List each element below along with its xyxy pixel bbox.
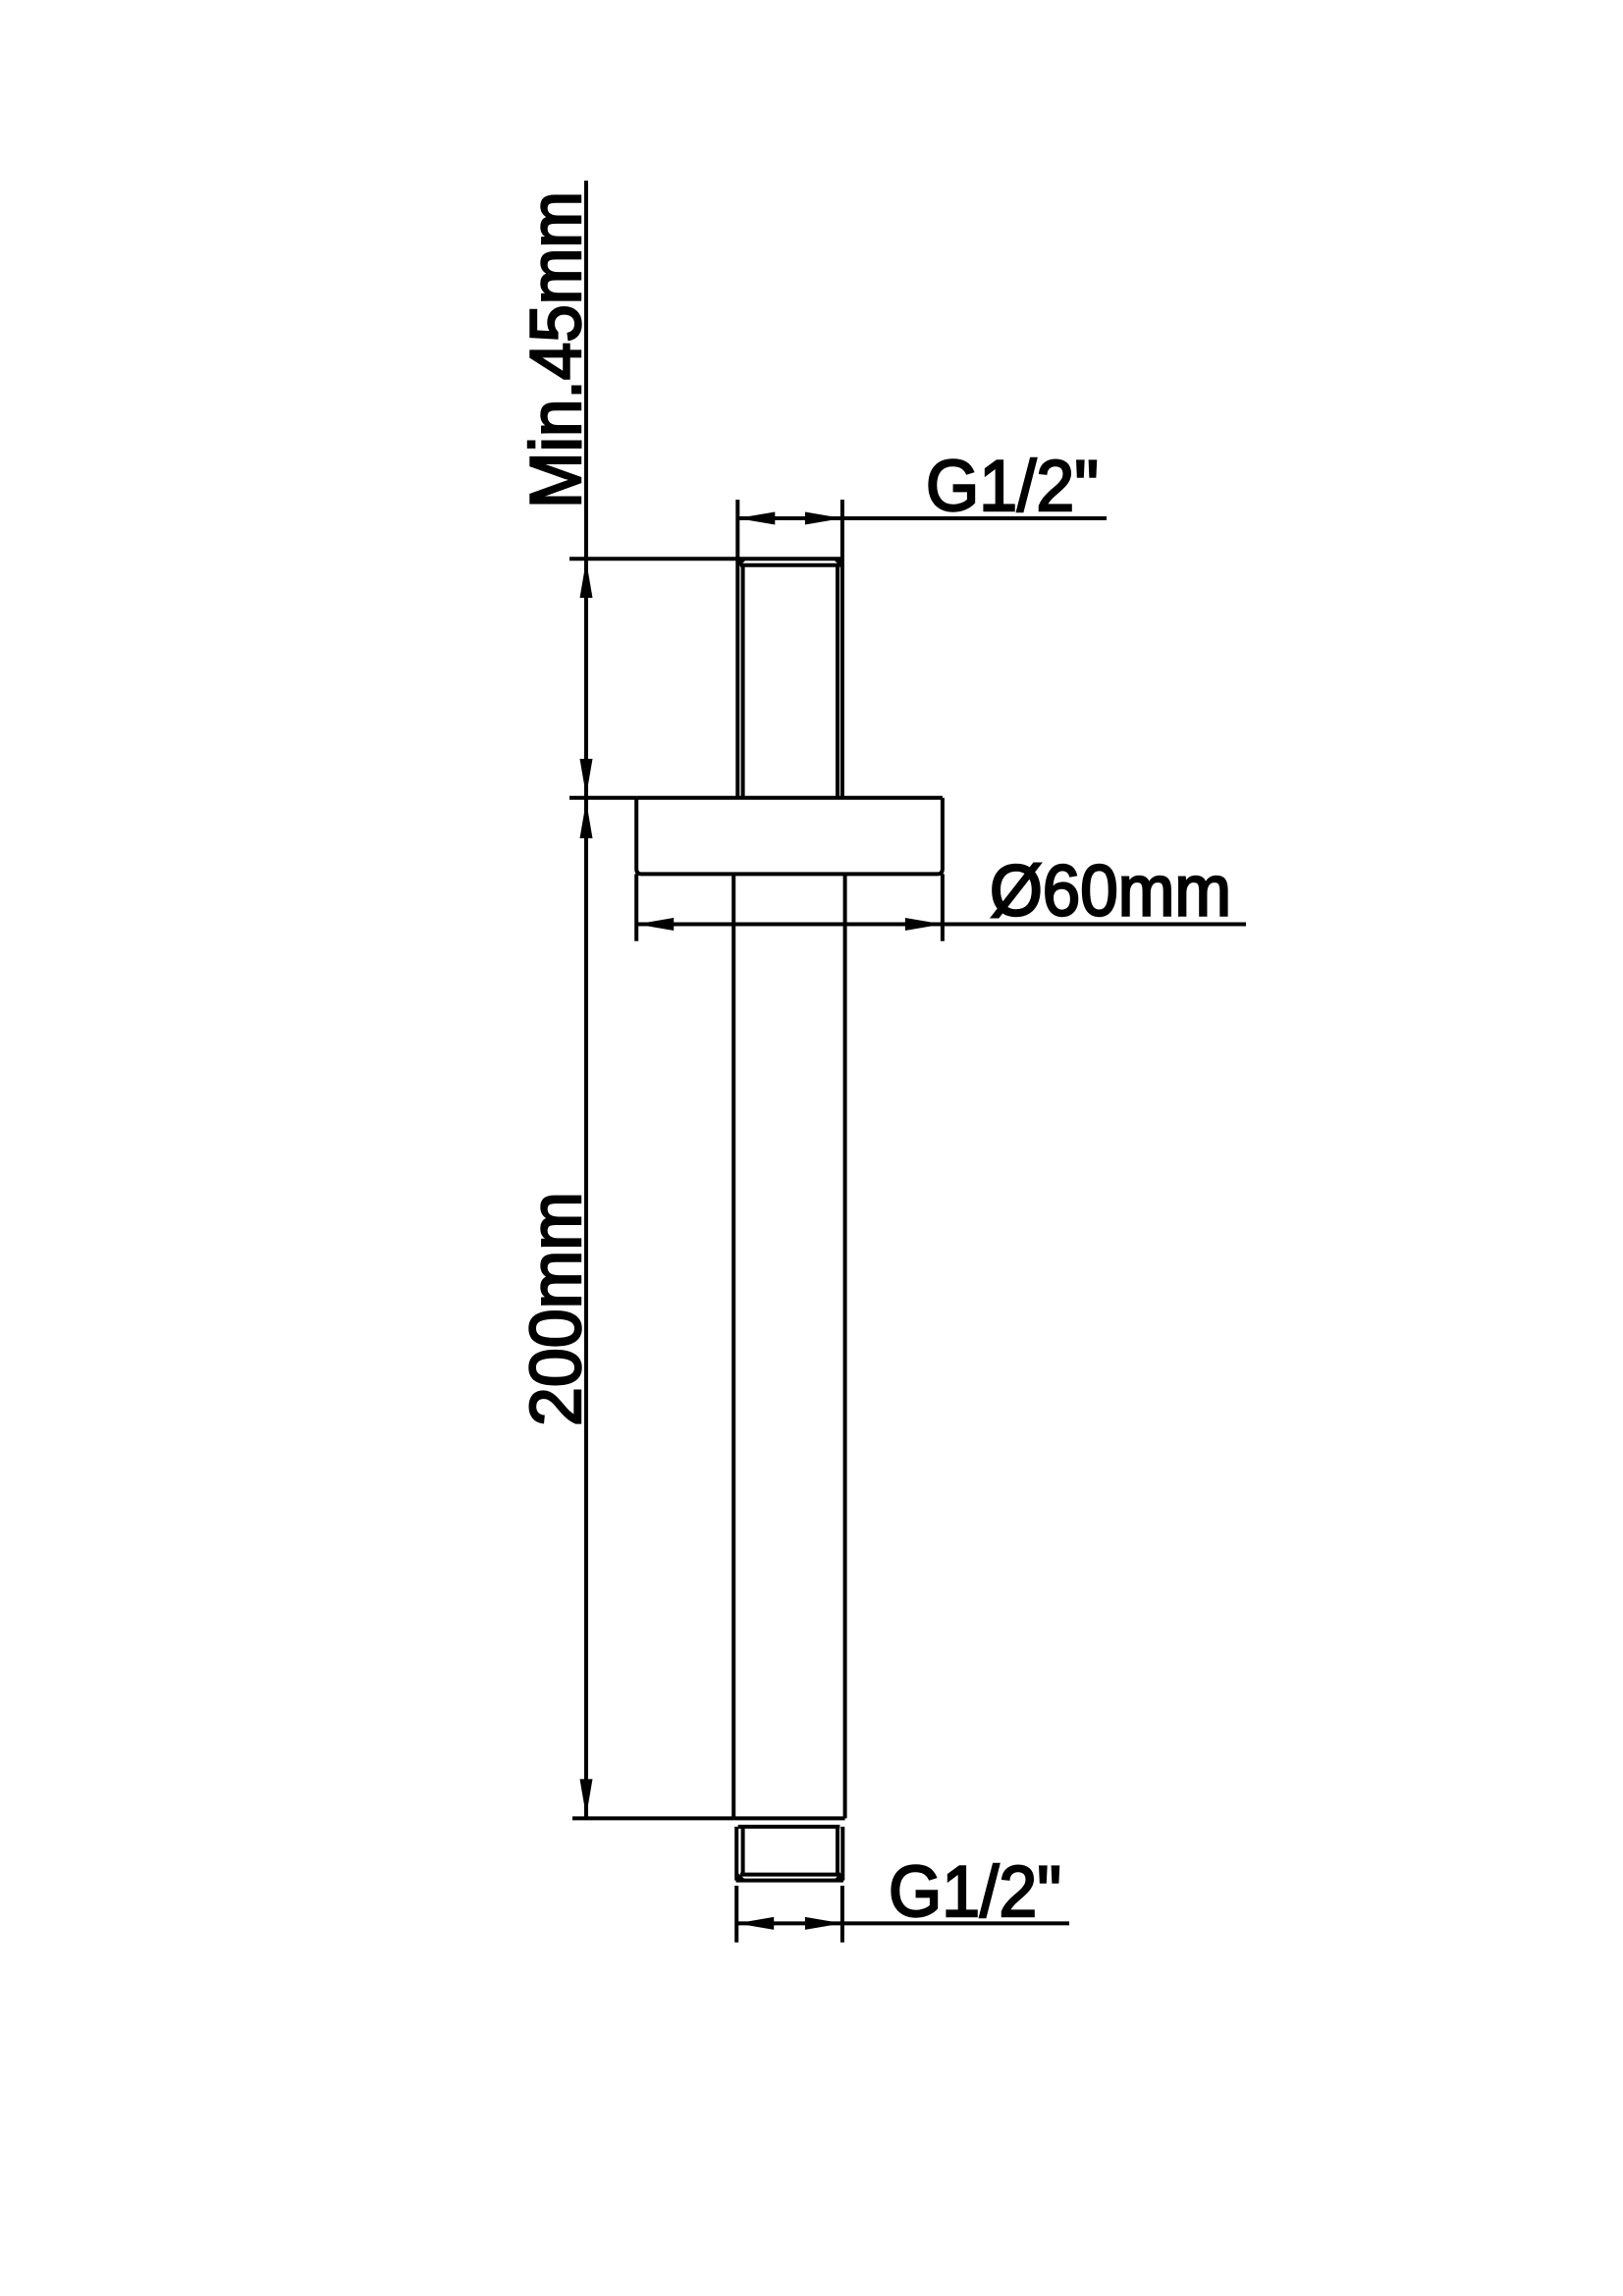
svg-text:200mm: 200mm [516,1192,596,1426]
svg-text:G1/2": G1/2" [889,1852,1061,1932]
svg-text:Ø60mm: Ø60mm [990,852,1231,932]
svg-text:Min.45mm: Min.45mm [516,191,596,508]
svg-text:G1/2": G1/2" [926,447,1099,526]
